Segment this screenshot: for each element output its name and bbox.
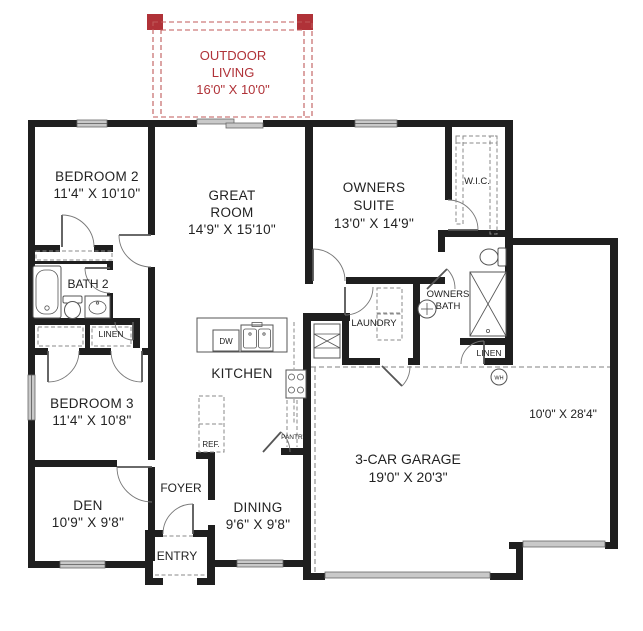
linen-hall-label: LINEN (98, 329, 123, 339)
bedroom3-window (28, 375, 35, 420)
bedroom3-closet-door (48, 351, 79, 382)
front-door (163, 504, 193, 534)
bedroom3-door (111, 351, 142, 382)
garage-entry-door (382, 366, 410, 386)
great-room-slider (197, 119, 263, 128)
owners-toilet-icon (480, 248, 506, 266)
bedroom2-door (62, 215, 94, 247)
owners-suite-door (313, 249, 345, 281)
washer-dryer-space (377, 288, 402, 340)
range-icon (286, 370, 306, 398)
kitchen-sink-icon (241, 323, 273, 352)
outdoor-living-dims: 16'0" X 10'0" (196, 82, 270, 97)
dining-window (237, 560, 283, 567)
garage-dims: 19'0" X 20'3" (368, 469, 447, 485)
den-door (117, 467, 152, 502)
dining-label: DINING (233, 500, 282, 515)
dishwasher-label: DW (219, 337, 233, 346)
bedroom2-label: BEDROOM 2 (55, 169, 139, 184)
owners-suite-window (355, 120, 397, 127)
refrigerator-label: REF. (202, 440, 219, 449)
owners-bath-label-2: BATH (436, 301, 461, 312)
owners-bath-label-1: OWNERS (427, 289, 470, 300)
great-room-label-2: ROOM (210, 205, 253, 220)
bedroom2-closet-shelf (36, 251, 112, 260)
bedroom2-dims: 11'4" X 10'10" (54, 186, 141, 201)
bedroom3-dims: 11'4" X 10'8" (52, 413, 131, 428)
den-window (60, 561, 105, 568)
wic-label: W.I.C. (464, 176, 490, 187)
den-dims: 10'9" X 9'8" (52, 515, 124, 530)
dining-dims: 9'6" X 9'8" (226, 517, 291, 532)
pantry-label: PANTRY (281, 434, 307, 441)
utility-appliance-icon (314, 324, 340, 358)
bath2-toilet-icon (63, 296, 82, 319)
great-room-label-1: GREAT (208, 188, 255, 203)
bathtub-icon (33, 266, 61, 318)
bedroom2-window (77, 120, 107, 127)
great-room-dims: 14'9" X 15'10" (188, 222, 276, 237)
outdoor-living-label-2: LIVING (212, 65, 255, 80)
owners-sink-icon (418, 300, 436, 318)
garage-door-main (325, 572, 490, 578)
linen-owners-label: LINEN (476, 348, 501, 358)
bath2-label: BATH 2 (67, 277, 108, 291)
foyer-label: FOYER (160, 481, 202, 495)
outdoor-living-area: OUTDOOR LIVING 16'0" X 10'0" (147, 14, 313, 117)
laundry-label: LAUNDRY (351, 318, 397, 329)
bedroom3-closet-shelf (38, 327, 83, 346)
room-labels: BEDROOM 2 11'4" X 10'10" GREAT ROOM 14'9… (50, 169, 597, 563)
kitchen-label: KITCHEN (211, 366, 272, 381)
owners-suite-dims: 13'0" X 14'9" (334, 216, 414, 231)
bath2-sink-icon (85, 296, 110, 318)
den-label: DEN (73, 498, 102, 513)
entry-label: ENTRY (157, 549, 197, 563)
bedroom-wing-door (119, 235, 151, 267)
floor-plan: OUTDOOR LIVING 16'0" X 10'0" (0, 0, 643, 631)
shower-icon (470, 272, 506, 336)
garage-bay-dims: 10'0" X 28'4" (529, 407, 597, 421)
water-heater-icon: WH (491, 369, 507, 385)
outdoor-living-label-1: OUTDOOR (200, 48, 266, 63)
owners-suite-label-2: SUITE (353, 198, 394, 213)
garage-label: 3-CAR GARAGE (355, 451, 461, 467)
water-heater-label: WH (494, 376, 503, 382)
bedroom3-label: BEDROOM 3 (50, 396, 134, 411)
owners-suite-label-1: OWNERS (343, 180, 406, 195)
laundry-door (345, 287, 373, 315)
garage-door-bay (523, 541, 605, 547)
